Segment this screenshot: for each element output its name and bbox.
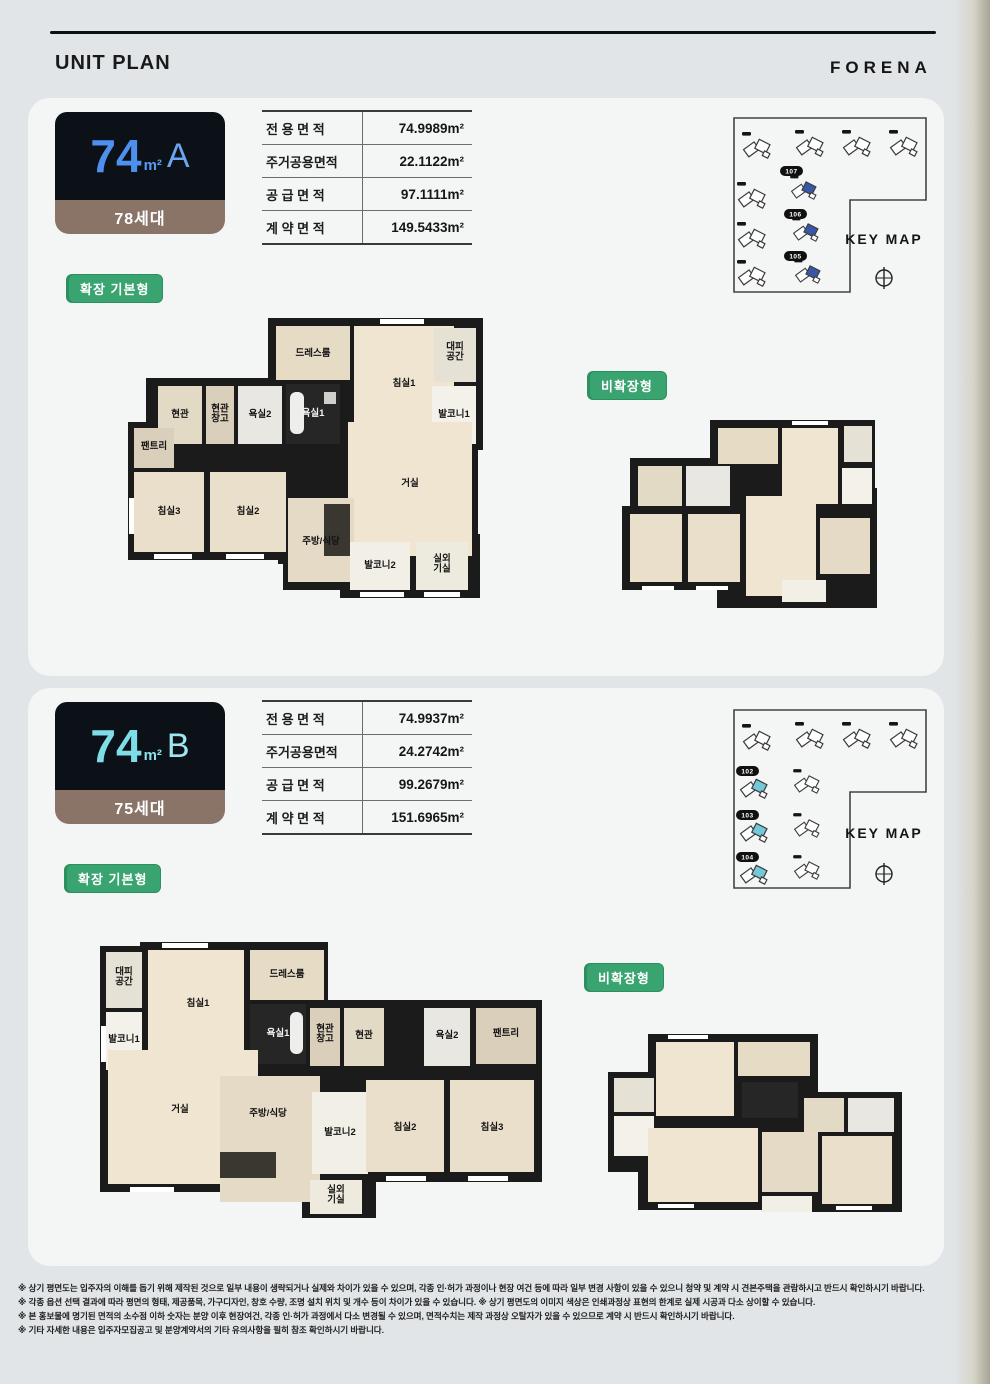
- plan-type-tag-expanded-b: 확장 기본형: [64, 864, 161, 893]
- row-value: 74.9937m²: [363, 702, 472, 734]
- row-label: 공 급 면 적: [262, 178, 363, 210]
- room-label-balcony1: 발코니1: [108, 1035, 140, 1045]
- room-label-bed1: 침실1: [393, 379, 416, 389]
- room-label-bed2: 침실2: [237, 507, 260, 517]
- unit-type-badge-74b: 74 m² B 75세대: [55, 702, 225, 824]
- unit-type-badge-74a: 74 m² A 78세대: [55, 112, 225, 234]
- table-row: 공 급 면 적 97.1111m²: [262, 178, 472, 211]
- row-label: 공 급 면 적: [262, 768, 363, 800]
- compass-icon: [876, 863, 892, 885]
- room-label-pantry: 팬트리: [493, 1029, 519, 1039]
- row-value: 74.9989m²: [363, 112, 472, 144]
- building-number-badge: 106: [784, 209, 807, 219]
- room-label-bath2: 욕실2: [436, 1031, 459, 1041]
- floor-plan-expanded-74b: 대피공간 발코니1 침실1 드레스룸 욕실1 현관창고 현관 욕실2 팬트리 거…: [100, 942, 542, 1218]
- area-table-74b: 전 용 면 적 74.9937m² 주거공용면적 24.2742m² 공 급 면…: [262, 700, 472, 835]
- key-map-title: KEY MAP: [845, 825, 923, 841]
- unit-size-unit: m²: [144, 747, 162, 764]
- table-row: 전 용 면 적 74.9989m²: [262, 112, 472, 145]
- table-row: 주거공용면적 24.2742m²: [262, 735, 472, 768]
- households-label: 75세대: [55, 790, 225, 824]
- room-label-bath2: 욕실2: [249, 410, 272, 420]
- floor-plan-basic-74a: [622, 418, 880, 614]
- disclaimer-line: ※ 기타 자세한 내용은 입주자모집공고 및 분양계약서의 기타 유의사항을 필…: [18, 1324, 968, 1338]
- room-label-living: 거실: [401, 479, 418, 489]
- building-number-badge: 102: [736, 766, 759, 776]
- households-label: 78세대: [55, 200, 225, 234]
- room-label-kitchen: 주방/식당: [302, 537, 340, 547]
- brand-logo: FORENA: [830, 58, 932, 78]
- row-value: 22.1122m²: [363, 145, 472, 177]
- room-label-bed1: 침실1: [187, 999, 210, 1009]
- key-map-drawing: 107 106 105 KEY MAP: [712, 106, 940, 298]
- unit-size: 74: [90, 723, 141, 769]
- room-label-bed3: 침실3: [158, 507, 181, 517]
- key-map-drawing: 102 103 104 KEY MAP: [712, 696, 940, 896]
- table-row: 계 약 면 적 151.6965m²: [262, 801, 472, 833]
- room-label-balcony2: 발코니2: [364, 561, 396, 571]
- plan-type-tag-basic-b: 비확장형: [584, 963, 664, 992]
- row-value: 151.6965m²: [363, 801, 472, 833]
- unit-type: B: [167, 729, 190, 763]
- room-label-entry-storage: 현관창고: [208, 405, 232, 426]
- key-map-74b: 102 103 104 KEY MAP: [712, 696, 940, 896]
- svg-text:102: 102: [741, 769, 753, 776]
- row-label: 계 약 면 적: [262, 801, 363, 833]
- room-label-balcony2: 발코니2: [324, 1128, 356, 1138]
- row-label: 전 용 면 적: [262, 702, 363, 734]
- row-value: 99.2679m²: [363, 768, 472, 800]
- room-label-ac: 실외기실: [324, 1186, 348, 1207]
- room-label-entry: 현관: [355, 1031, 372, 1041]
- room-label-ac: 실외기실: [430, 555, 454, 576]
- svg-text:104: 104: [741, 855, 753, 862]
- area-table-74a: 전 용 면 적 74.9989m² 주거공용면적 22.1122m² 공 급 면…: [262, 110, 472, 245]
- row-label: 주거공용면적: [262, 145, 363, 177]
- room-label-entry: 현관: [171, 410, 188, 420]
- building-number-badge: 103: [736, 810, 759, 820]
- building-number-badge: 104: [736, 852, 759, 862]
- svg-text:105: 105: [789, 254, 801, 261]
- room-label-shelter: 대피공간: [443, 343, 467, 364]
- table-row: 전 용 면 적 74.9937m²: [262, 702, 472, 735]
- unit-size: 74: [90, 133, 141, 179]
- room-label-shelter: 대피공간: [112, 968, 136, 989]
- key-map-74a: 107 106 105 KEY MAP: [712, 106, 940, 298]
- table-row: 계 약 면 적 149.5433m²: [262, 211, 472, 243]
- row-value: 97.1111m²: [363, 178, 472, 210]
- row-label: 계 약 면 적: [262, 211, 363, 243]
- plan-type-tag-basic-a: 비확장형: [587, 371, 667, 400]
- unit-type: A: [167, 139, 190, 173]
- floor-plan-drawing: [100, 942, 542, 1218]
- disclaimer: ※ 상기 평면도는 입주자의 이해를 돕기 위해 제작된 것으로 일부 내용이 …: [18, 1282, 968, 1338]
- room-label-bath1: 욕실1: [302, 409, 325, 419]
- top-rule: [50, 31, 936, 34]
- table-row: 공 급 면 적 99.2679m²: [262, 768, 472, 801]
- row-value: 24.2742m²: [363, 735, 472, 767]
- room-label-dress: 드레스룸: [270, 970, 305, 980]
- plan-type-tag-expanded-a: 확장 기본형: [66, 274, 163, 303]
- row-value: 149.5433m²: [363, 211, 472, 243]
- compass-icon: [876, 267, 892, 289]
- room-label-bath1: 욕실1: [267, 1029, 290, 1039]
- svg-text:106: 106: [789, 212, 801, 219]
- room-label-bed2: 침실2: [394, 1123, 417, 1133]
- room-label-pantry: 팬트리: [141, 442, 167, 452]
- building-number-badge: 107: [780, 166, 803, 176]
- building-number-badge: 105: [784, 251, 807, 261]
- page-scan-edge: [954, 0, 990, 1384]
- room-label-kitchen: 주방/식당: [249, 1109, 287, 1119]
- floor-plan-drawing: [608, 1032, 902, 1218]
- floor-plan-drawing: [622, 418, 880, 614]
- room-label-living: 거실: [171, 1105, 188, 1115]
- room-label-bed3: 침실3: [481, 1123, 504, 1133]
- floor-plan-expanded-74a: 현관 현관창고 욕실2 욕실1 드레스룸 침실1 대피공간 발코니1 팬트리 침…: [128, 318, 483, 614]
- room-label-dress: 드레스룸: [296, 349, 331, 359]
- disclaimer-line: ※ 상기 평면도는 입주자의 이해를 돕기 위해 제작된 것으로 일부 내용이 …: [18, 1282, 968, 1296]
- svg-text:103: 103: [741, 813, 753, 820]
- brochure-page: UNIT PLAN FORENA 74 m² A 78세대 전 용 면 적 74…: [0, 0, 990, 1384]
- page-title: UNIT PLAN: [55, 52, 171, 75]
- disclaimer-line: ※ 각종 옵션 선택 결과에 따라 평면의 형태, 제공품목, 가구디자인, 창…: [18, 1296, 968, 1310]
- room-label-entry-storage: 현관창고: [313, 1025, 337, 1046]
- unit-size-unit: m²: [144, 157, 162, 174]
- table-row: 주거공용면적 22.1122m²: [262, 145, 472, 178]
- unit-type-label: 74 m² B: [55, 702, 225, 790]
- floor-plan-basic-74b: [608, 1032, 902, 1218]
- room-label-balcony1: 발코니1: [438, 410, 470, 420]
- row-label: 전 용 면 적: [262, 112, 363, 144]
- row-label: 주거공용면적: [262, 735, 363, 767]
- disclaimer-line: ※ 본 홍보물에 명기된 면적의 소수점 이하 숫자는 분양 이후 현장여건, …: [18, 1310, 968, 1324]
- key-map-title: KEY MAP: [845, 231, 923, 247]
- svg-text:107: 107: [785, 169, 797, 176]
- unit-type-label: 74 m² A: [55, 112, 225, 200]
